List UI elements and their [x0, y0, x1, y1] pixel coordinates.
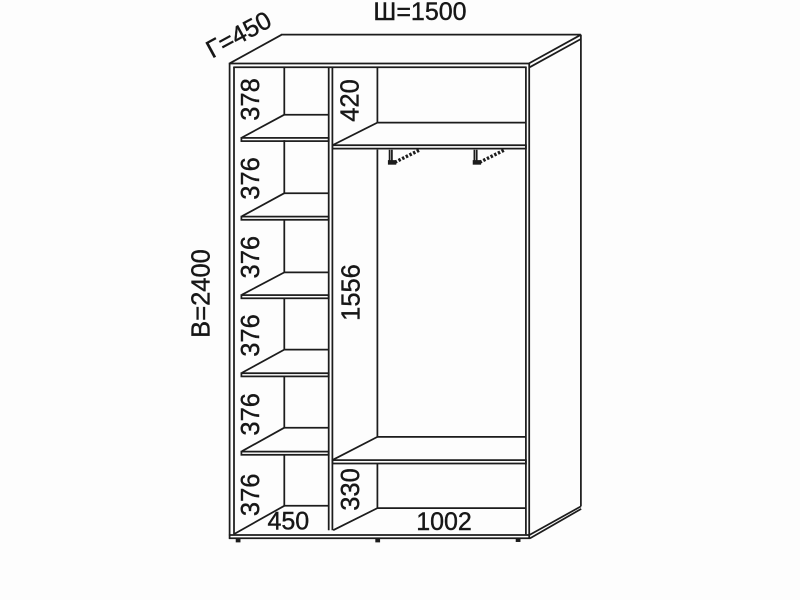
svg-text:Г=450: Г=450 — [202, 6, 277, 64]
svg-text:420: 420 — [336, 79, 364, 122]
svg-text:376: 376 — [237, 157, 265, 200]
svg-text:376: 376 — [237, 474, 265, 517]
svg-text:376: 376 — [237, 314, 265, 357]
svg-text:376: 376 — [237, 393, 265, 436]
svg-text:1002: 1002 — [416, 508, 472, 536]
svg-text:330: 330 — [337, 468, 365, 511]
svg-text:376: 376 — [237, 236, 265, 279]
svg-text:450: 450 — [267, 507, 309, 535]
svg-text:Ш=1500: Ш=1500 — [373, 0, 466, 26]
svg-text:1556: 1556 — [338, 264, 366, 321]
svg-text:378: 378 — [237, 78, 265, 121]
svg-text:В=2400: В=2400 — [188, 249, 216, 338]
